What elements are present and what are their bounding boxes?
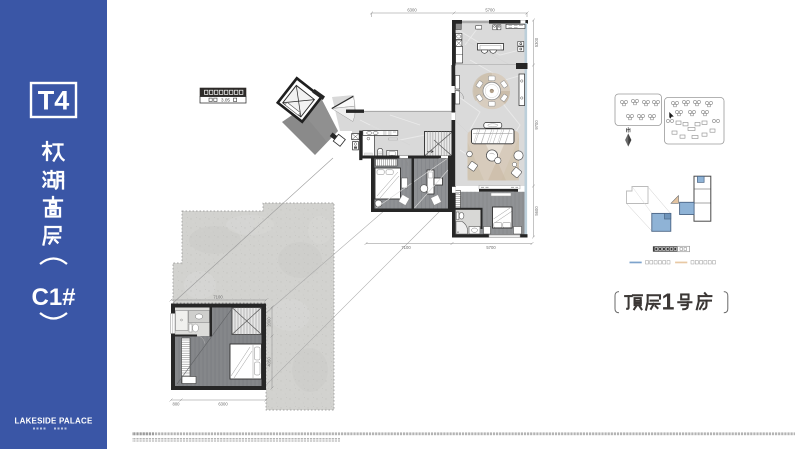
svg-text:T4: T4	[38, 86, 70, 116]
svg-text:6300: 6300	[218, 402, 228, 407]
svg-text:7100: 7100	[213, 295, 223, 300]
svg-text:5300: 5300	[534, 37, 539, 47]
svg-text:6300: 6300	[407, 8, 417, 13]
svg-text:3.05: 3.05	[221, 98, 230, 103]
svg-text:9700: 9700	[534, 120, 539, 130]
svg-text:LAKESIDE PALACE: LAKESIDE PALACE	[15, 417, 93, 426]
svg-text:1: 1	[662, 289, 675, 315]
svg-text:800: 800	[173, 402, 181, 407]
svg-text:5700: 5700	[486, 245, 496, 250]
svg-text:4050: 4050	[267, 357, 272, 367]
svg-text:5700: 5700	[485, 8, 495, 13]
svg-text:2000: 2000	[267, 317, 272, 327]
svg-text:7100: 7100	[401, 245, 411, 250]
svg-text:5600: 5600	[534, 206, 539, 216]
svg-text:C1#: C1#	[31, 284, 75, 311]
